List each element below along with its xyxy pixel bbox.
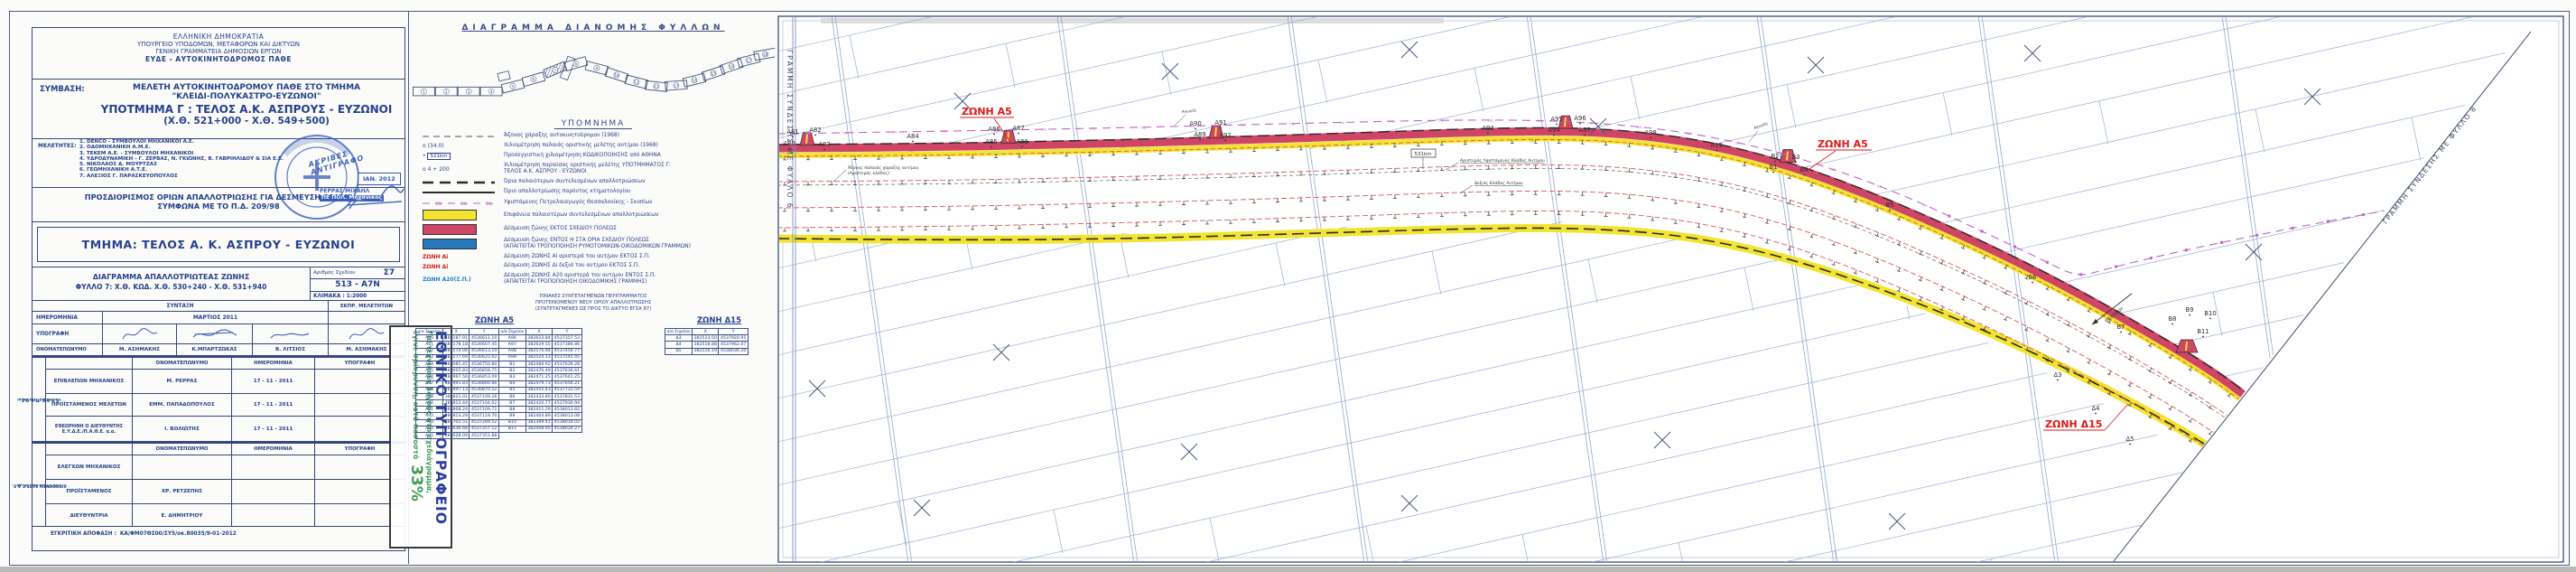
agency-line: ΓΕΝΙΚΗ ΓΡΑΜΜΑΤΕΙΑ ΔΗΜΟΣΙΩΝ ΕΡΓΩΝ (33, 48, 405, 55)
legend-label: Δέσμευση ΖΩΝΗΣ Δi δεξιά του αυτ/μου ΕΚΤΟ… (504, 263, 639, 269)
sheet-index-cell: 8 (564, 57, 588, 71)
table-row: Α84383085.454536750.80Β1382484.924537639… (416, 361, 582, 367)
sheet-index-cell: 7 (544, 61, 567, 78)
diagram-title-section: ΔΙΑΓΡΑΜΜΑ ΑΠΑΛΛΟΤΡΙΩΤΕΑΣ ΖΩΝΗΣ ΦΥΛΛΟ 7: … (33, 267, 405, 301)
coord-y: 4536607.45 (470, 342, 498, 348)
contract-chainage: (Χ.Θ. 521+000 - Χ.Θ. 549+500) (96, 116, 397, 127)
svg-text:OIL: OIL (1389, 119, 1395, 124)
table-row: Α87382991.834536860.86Β4382479.734537656… (416, 380, 582, 387)
drawing-number-box: Αριθμός ΣχεδίουΣ7 513 - Α7Ν ΚΛΙΜΑΚΑ : 1:… (311, 267, 405, 300)
coord-y: 4536870.52 (470, 387, 498, 393)
boundary-point-label: B7 (2117, 324, 2125, 331)
sheet-index-cell: 2 (435, 87, 457, 96)
coord-col-header: Χ (693, 329, 719, 335)
boundary-point-label: B1 (1770, 164, 1778, 171)
point-id: Β2 (498, 368, 525, 374)
coord-x: 383005.83 (443, 368, 470, 374)
point-id: Β3 (498, 374, 525, 380)
approvals-directorate: ΔΙΕΥΘΥΝΣΗ Δ13Γ Γ.Δ.Ε.ΥΠΟΥΡΓΕΙΟ ΥΠΟ.ΜΕ.ΔΙ… (33, 442, 405, 527)
table-row: Α83383177.694536625.02Α99382524.13453754… (416, 354, 582, 361)
svg-text:OIL: OIL (1091, 126, 1097, 130)
coord-x: 382411.29 (525, 407, 552, 413)
map-canvas: OILOILOILOILOILOILOILOILOILOILOILOILOILO… (777, 15, 2565, 564)
zone-label-a5-2: ΖΩΝΗ Α5 (1818, 138, 1868, 150)
boundary-point-label: B6 (2029, 274, 2037, 281)
approver-name: Ε. ΔΗΜΗΤΡΙΟΥ (133, 504, 232, 527)
date-value: ΜΑΡΤΙΟΣ 2011 (103, 312, 329, 324)
legend-item: ΖΩΝΗ ΑiΔέσμευση ΖΩΝΗΣ Αi αριστερά του αυ… (412, 254, 775, 260)
table-row: Α94382636.664537357.12Β11382408.95453803… (416, 426, 582, 432)
svg-text:OIL: OIL (1488, 117, 1494, 122)
svg-text:OIL: OIL (1041, 127, 1047, 132)
boundary-point-label: A96 (1574, 115, 1586, 122)
point-id: Α89 (416, 393, 443, 399)
boundary-point-label: B3 (1792, 154, 1800, 161)
svg-text:OIL: OIL (1686, 131, 1692, 136)
legend-item: ΖΩΝΗ ΔiΔέσμευση ΖΩΝΗΣ Δi δεξιά του αυτ/μ… (412, 263, 775, 269)
prep-name: Β. ΛΙΤΣΙΟΣ (253, 344, 329, 355)
coord-x: 382636.66 (443, 426, 470, 432)
signature (253, 324, 329, 343)
point-id: Β7 (498, 400, 525, 407)
legend-label: Δέσμευση ΖΩΝΗΣ Αi αριστερά του αυτ/μου Ε… (504, 254, 650, 260)
legend-symbol-sw-blue (412, 239, 504, 249)
right-branch-note: Δεξιός Κλάδος Αυτ/μου (1474, 180, 1523, 186)
legend-symbol-axis (412, 133, 504, 140)
legend-label: Χιλιομέτρηση παλαιάς οριστικής μελέτης α… (504, 143, 658, 149)
boundary-point-label: Δ3 (2054, 371, 2062, 379)
contract-subsection: ΥΠΟΤΜΗΜΑ Γ : ΤΕΛΟΣ Α.Κ. ΑΣΠΡΟΥΣ - ΕΥΖΩΝΟ… (96, 101, 397, 116)
table-row: Α85383005.834536858.75Β2382476.494537636… (416, 368, 582, 374)
coord-x: 382991.83 (443, 380, 470, 387)
sheet-index-cell: 16 (720, 59, 743, 73)
svg-text:OIL: OIL (1877, 184, 1883, 189)
svg-text:OIL: OIL (435, 202, 442, 207)
col-name: ΟΝΟΜΑΤΕΠΩΝΥΜΟ (133, 444, 232, 455)
coord-y: 4537269.52 (470, 419, 498, 426)
drawing-number-top: Σ7 (374, 268, 405, 277)
coord-col-header: Υ (719, 329, 748, 335)
svg-text:OIL: OIL (1140, 125, 1147, 129)
sheet-index-cell: 3 (458, 87, 479, 96)
legend-symbol-oil: OILOILOIL (412, 199, 504, 207)
coord-y: 4537357.12 (470, 426, 498, 432)
svg-text:OIL: OIL (942, 129, 948, 134)
date-label: ΗΜΕΡΟΜΗΝΙΑ (33, 312, 103, 324)
legend-label: Χιλιομέτρηση παρούσας οριστικής μελέτης … (504, 163, 671, 176)
legend-label: Υφιστάμενος Πετρελαιαγωγός Θεσσαλονίκης … (504, 200, 653, 206)
coord-y: 4538034.27 (553, 426, 581, 432)
coord-col-header: Υ (553, 329, 581, 335)
boundary-point-label: A93 (1482, 125, 1493, 132)
legend-item: Άξονας χάραξης αυτοκινητοδρομου (1968) (412, 133, 775, 140)
point-id: Α99 (498, 354, 525, 361)
point-id: Α83 (416, 354, 443, 361)
coord-y (553, 433, 581, 439)
contract-label: ΣΥΜΒΑΣΗ: (40, 85, 85, 94)
point-id: Β5 (498, 387, 525, 393)
point-id: Β4 (498, 380, 525, 387)
sheet-index-title: ΔΙΑΓΡΑΜΜΑ ΔΙΑΝΟΜΗΣ ΦΥΛΛΩΝ (412, 23, 775, 33)
approver-name: Μ. ΡΕΡΡΑΣ (133, 370, 232, 393)
coord-x: 382524.13 (525, 354, 552, 361)
role: ΕΘΕΩΡΗΘΗ Ο ΔΙΕΥΘΥΝΤΗΣ Ε.Υ.Δ.Ε./Π.Α.Θ.Ε. … (46, 417, 133, 442)
coord-x: 383177.69 (443, 354, 470, 361)
coord-x: 382399.41 (525, 419, 552, 426)
table-row: Δ3382523.504537920.91 (665, 335, 749, 342)
legend-label: Δέσμευση ζώνης ΕΚΤΟΣ ΣΧΕΔΙΟΥ ΠΟΛΕΩΣ (504, 226, 617, 232)
prep-name: Μ. ΑΣΗΜΑΚΗΣ (103, 344, 177, 355)
legend-item: Δέσμευση ζώνης ΕΚΤΟΣ ΣΧΕΔΙΟΥ ΠΟΛΕΩΣ (412, 224, 775, 235)
boundary-point-label: A80 (783, 140, 795, 147)
sheet-index-cell: 18 (754, 48, 775, 61)
point-id: Α84 (416, 361, 443, 367)
coord-x: 382408.95 (525, 426, 552, 432)
table-row: Δ5382516.194538036.20 (665, 348, 749, 354)
scan-edge (0, 567, 2576, 572)
col-date: ΗΜΕΡΟΜΗΝΙΑ (232, 358, 315, 369)
sheet-number: 12 (654, 84, 659, 90)
coord-y: 4538036.20 (719, 348, 748, 354)
point-id: Β8 (498, 407, 525, 413)
legend-item: OILOILOILΥφιστάμενος Πετρελαιαγωγός Θεσσ… (412, 199, 775, 207)
approval-date: 17 - 11 - 2011 (232, 394, 315, 416)
legend-label: Άξονας χάραξης αυτοκινητοδρομου (1968) (504, 133, 619, 139)
coord-y: 4537636.61 (553, 368, 581, 374)
table-row: Α92382813.294537119.70Β9382404.894538013… (416, 413, 582, 419)
coord-y: 4537109.26 (470, 393, 498, 399)
agency-line: ΕΛΛΗΝΙΚΗ ΔΗΜΟΚΡΑΤΙΑ (33, 28, 405, 41)
diagram-title: ΔΙΑΓΡΑΜΜΑ ΑΠΑΛΛΟΤΡΙΩΤΕΑΣ ΖΩΝΗΣ (33, 267, 310, 281)
agency-line: ΥΠΟΥΡΓΕΙΟ ΥΠΟΔΟΜΩΝ, ΜΕΤΑΦΟΡΩΝ ΚΑΙ ΔΙΚΤΥΩ… (33, 41, 405, 48)
boundary-point-label: A87 (1012, 125, 1024, 132)
point-id: Β6 (498, 393, 525, 399)
coord-x: 383085.45 (443, 361, 470, 367)
coord-x: 382476.49 (525, 368, 552, 374)
sheet-index-cell: 9 (585, 61, 609, 75)
boundary-point-label: A99 (1710, 142, 1722, 149)
legend-label: Όριο απαλλοτρίωσης παρόντος κτηματολογίο… (504, 189, 631, 195)
point-id: Δ3 (665, 335, 693, 342)
point-id: Δ4 (665, 342, 693, 348)
coord-y: 4537119.70 (470, 413, 498, 419)
coord-x: 382404.89 (525, 413, 552, 419)
approval-date: 17 - 11 - 2011 (232, 417, 315, 442)
svg-text:OIL: OIL (1734, 140, 1741, 145)
svg-text:OIL: OIL (842, 130, 849, 135)
coord-col-header: Χ (525, 329, 552, 335)
sheet-index-cell: 4 (480, 87, 502, 96)
coord-col-header: Χ (443, 329, 470, 335)
coord-x: 382471.25 (525, 374, 552, 380)
legend-label: Δέσμευση ζώνης ΕΝΤΟΣ Η ΣΤΑ ΟΡΙΑ ΣΧΕΔΙΟΥ … (504, 238, 691, 251)
coord-x: 382518.88 (693, 342, 719, 348)
boundary-point-label: A82 (809, 127, 821, 134)
sheet-number: 4 (490, 89, 493, 95)
coord-x: 382629.55 (525, 342, 552, 348)
prep-header-right: ΕΚΠΡ. ΜΕΛΕΤΗΤΩΝ (329, 301, 405, 311)
engineer-stamp: ΡΕΡΡΑΣ ΜΙΧΑΗΛ ΠΕ ΠΟΛ. Μηχανικός (320, 189, 384, 202)
table-row: Α81383178.184536607.45Α97382629.55453738… (416, 342, 582, 348)
role: ΕΛΕΓΧΩΝ ΜΗΧΑΝΙΚΟΣ (46, 455, 133, 479)
legend-symbol-sw-red (412, 224, 504, 235)
point-id (498, 433, 525, 439)
coord-y: 4536860.86 (470, 380, 498, 387)
boundary-point-label: A85 (985, 138, 997, 145)
coord-y: 4537386.86 (553, 342, 581, 348)
approval-decision-value: ΚΑ/ΦΜ07ΘΣ00/ΣΥ5/οκ.80035/9-01-2012 (120, 531, 237, 537)
svg-text:OIL: OIL (1339, 120, 1345, 125)
coord-y: 4537920.91 (719, 335, 748, 342)
boundary-point-label: A84 (907, 133, 918, 140)
boundary-point-label: Δ4 (2092, 405, 2100, 412)
coord-x: 382821.01 (443, 393, 470, 399)
diagram-sheet-range: ΦΥΛΛΟ 7: Χ.Θ. ΚΩΔ. Χ.Θ. 530+240 - Χ.Θ. 5… (33, 281, 310, 291)
boundary-point-label: A98 (1644, 129, 1656, 136)
legend-item: ο (34.0)Χιλιομέτρηση παλαιάς οριστικής μ… (412, 143, 775, 149)
sheet-number: 2 (445, 89, 448, 95)
point-id: Α81 (416, 342, 443, 348)
legend-item: Όρια παλαιότερων συντελεσμένων απαλλοτρι… (412, 179, 775, 186)
point-id: Α90 (416, 400, 443, 407)
coord-col-header: Υ (470, 329, 498, 335)
svg-text:OIL: OIL (1538, 118, 1544, 123)
sheet-index-cell: 6 (522, 72, 545, 87)
boundary-point-label: A90 (1189, 120, 1201, 127)
boundary-point-label: A81 (786, 128, 798, 136)
coord-y: 4537656.21 (553, 380, 581, 387)
contract-title: "ΚΛΕΙΔΙ-ΠΟΛΥΚΑΣΤΡΟ-ΕΥΖΩΝΟΙ" (96, 92, 397, 101)
coord-col-header: α/α Σημείου (665, 329, 693, 335)
boundary-point-label: B9 (2186, 306, 2194, 314)
legend-symbol-zone-a: ΖΩΝΗ Αi (412, 254, 504, 260)
boundary-point-label: A92 (1219, 132, 1231, 139)
prep-header-row: ΣΥΝΤΑΞΗ ΕΚΠΡ. ΜΕΛΕΤΗΤΩΝ (33, 301, 405, 312)
coord-y: 4537733.59 (553, 387, 581, 393)
legend-item: Δέσμευση ζώνης ΕΝΤΟΣ Η ΣΤΑ ΟΡΙΑ ΣΧΕΔΙΟΥ … (412, 238, 775, 251)
legend-symbol-zone-d: ΖΩΝΗ Δi (412, 264, 504, 270)
km-marker-531: 531km (1414, 152, 1431, 157)
coord-x: 382702.51 (443, 419, 470, 426)
coord-x: 383187.91 (443, 335, 470, 342)
coord-x (525, 433, 552, 439)
table-row: Α88382997.134536870.52Β5382455.434537733… (416, 387, 582, 393)
coord-y: 4537962.07 (719, 342, 748, 348)
section-title: ΤΜΗΜΑ: ΤΕΛΟΣ Α. Κ. ΑΣΠΡΟΥ - ΕΥΖΩΝΟΙ (37, 227, 400, 262)
boundary-point-label: A89 (1194, 131, 1205, 138)
coord-x: 382523.50 (693, 335, 719, 342)
boundary-point-label: A95 (1550, 116, 1562, 123)
coord-tables-title: ΠΙΝΑΚΕΣ ΣΥΝΤΕΤΑΓΜΕΝΩΝ ΠΕΡΙΓΡΑΜΜΑΤΟΣ (412, 294, 775, 300)
coord-col-header: α/α Σημείου (416, 329, 443, 335)
legend-label: Επιφάνεια παλαιοτέρων συντελεσμένων απαλ… (504, 212, 658, 219)
zone-label-a5: ΖΩΝΗ Α5 (962, 106, 1012, 117)
role: ΔΙΕΥΘΥΝΤΡΙΑ (46, 504, 133, 527)
approval-decision-row: ΕΓΚΡΙΤΙΚΗ ΑΠΟΦΑΣΗ : ΚΑ/ΦΜ07ΘΣ00/ΣΥ5/οκ.8… (33, 527, 405, 541)
sheet-number: 3 (468, 89, 470, 95)
table-row: Α86382997.564536853.09Β3382471.254537641… (416, 374, 582, 380)
approval-date: 17 - 11 - 2011 (232, 370, 315, 393)
legend-symbol-dot-code: • 521km (412, 153, 504, 160)
sheet-number: 1 (423, 89, 425, 95)
svg-text:OIL: OIL (1240, 123, 1246, 127)
boundary-point-label: B2 (1772, 153, 1780, 160)
table-row: Α82383174.044536613.10Α98382570.94453745… (416, 348, 582, 354)
coord-y: 4537545.45 (553, 354, 581, 361)
boundary-point-label: B4 (1800, 166, 1809, 173)
svg-text:OIL: OIL (1438, 118, 1445, 123)
coord-x: 382420.77 (525, 400, 552, 407)
point-id: Α96 (498, 335, 525, 342)
coord-y: 4537456.77 (553, 348, 581, 354)
approval-decision-label: ΕΓΚΡΙΤΙΚΗ ΑΠΟΦΑΣΗ : (51, 531, 116, 537)
coord-x: 382433.80 (525, 393, 552, 399)
contract-title: ΜΕΛΕΤΗ ΑΥΤΟΚΙΝΗΤΟΔΡΟΜΟΥ ΠΑΘΕ ΣΤΟ ΤΜΗΜΑ (96, 80, 397, 92)
coord-y: 4536611.10 (470, 335, 498, 342)
legend-label: Προσεγγιστική χιλιομέτρηση ΚΩΔΙΚΟΠΟΙΗΣΗΣ… (504, 153, 661, 159)
coord-y: 4537930.94 (553, 400, 581, 407)
zone-label-d15: ΖΩΝΗ Δ15 (2045, 418, 2102, 430)
old-axis-note2: (Αριστερός κλάδος) (848, 170, 889, 176)
coord-x: 382808.24 (443, 407, 470, 413)
approvals-ministry: ΥΠΟΥΡΓΕΙΟ ΥΠΟ.ΜΕ.ΔΙ (17, 398, 60, 401)
name-label: ΟΝΟΜΑΤΕΠΩΝΥΜΟ (33, 344, 103, 355)
legend-symbol-zone-a20: ΖΩΝΗ Α20(Σ.Π.) (412, 277, 504, 283)
table-row: Α91382808.244537109.71Β8382411.294538013… (416, 407, 582, 413)
legend-symbol-sw-yellow (412, 210, 504, 220)
agency-line: ΕΥΔΕ - ΑΥΤΟΚΙΝΗΤΟΔΡΟΜΟΣ ΠΑΘΕ (33, 55, 405, 63)
coord-x: 382628.09 (443, 433, 470, 439)
sheet-number: 13 (674, 83, 679, 89)
legend-item: Όριο απαλλοτρίωσης παρόντος κτηματολογίο… (412, 189, 775, 196)
coord-x: 382516.19 (693, 348, 719, 354)
point-id: Α87 (416, 380, 443, 387)
sheet-index-cell: 11 (625, 75, 648, 89)
boundary-point-label: Δ5 (2126, 436, 2134, 443)
coord-x: 382484.92 (525, 361, 552, 367)
svg-text:OIL: OIL (892, 129, 898, 134)
signature (177, 324, 253, 343)
sheet-index-cell: 12 (645, 80, 667, 91)
prep-name: Κ.ΜΠΑΡΤΖΩΚΑΣ (177, 344, 253, 355)
coord-tables-subtitle: ΠΡΟΤΕΙΝΟΜΕΝΟΥ ΝΕΟΥ ΟΡΙΟΥ ΑΠΑΛΛΟΤΡΙΩΣΗΣ (412, 300, 775, 306)
prep-sign-row: ΥΠΟΓΡΑΦΗ (33, 324, 405, 344)
svg-text:OIL: OIL (460, 202, 468, 207)
coord-y: 4537109.71 (470, 407, 498, 413)
boundary-point-label: A94 (1548, 127, 1559, 134)
point-id: Α97 (498, 342, 525, 348)
coord-y: 4537357.53 (553, 335, 581, 342)
coord-tables-datum: (ΣΥΝΤΕΤΑΓΜΕΝΕΣ ΩΣ ΠΡΟΣ ΤΟ ΔΙΚΤΥΟ ΕΓΣΑ 87… (412, 306, 775, 313)
point-id: Β1 (498, 361, 525, 367)
approver-name: ΧΡ. ΡΕΤΖΕΠΗΣ (133, 480, 232, 503)
sheet-index-cell: 1 (413, 87, 434, 96)
coord-y: 4537639.28 (553, 361, 581, 367)
engineer-title: ΠΕ ΠΟΛ. Μηχανικός (320, 195, 384, 202)
boundary-point-label: A88 (1016, 138, 1028, 145)
point-id: Β9 (498, 413, 525, 419)
col-date: ΗΜΕΡΟΜΗΝΙΑ (232, 444, 315, 455)
point-id: Α98 (498, 348, 525, 354)
coord-x: 382997.56 (443, 374, 470, 380)
point-id: Β10 (498, 419, 525, 426)
svg-text:OIL: OIL (486, 202, 493, 207)
legend-panel: ΔΙΑΓΡΑΜΜΑ ΔΙΑΝΟΜΗΣ ΦΥΛΛΩΝ 12345678910111… (412, 13, 775, 566)
col-name: ΟΝΟΜΑΤΕΠΩΝΥΜΟ (133, 358, 232, 369)
coord-y: 4538013.82 (553, 407, 581, 413)
legend-label: Δέσμευση ΖΩΝΗΣ Α20 αριστερά του αυτ/μου … (504, 273, 656, 286)
prep-name-row: ΟΝΟΜΑΤΕΠΩΝΥΜΟ Μ. ΑΣΗΜΑΚΗΣ Κ.ΜΠΑΡΤΖΩΚΑΣ Β… (33, 344, 405, 356)
sheet-index-cell: 5 (501, 80, 525, 93)
coord-x: 382812.44 (443, 400, 470, 407)
approver-name: ΕΜΜ. ΠΑΠΑΔΟΠΟΥΛΟΣ (133, 394, 232, 416)
map-frame (778, 16, 2563, 562)
drawing-number: 513 - Α7Ν (311, 279, 405, 292)
boundary-point-label: A97 (1578, 127, 1590, 134)
svg-text:OIL: OIL (1922, 203, 1929, 208)
approver-name: Ι. ΒΟΛΙΩΤΗΣ (133, 417, 232, 442)
table-row: Α95382628.094537351.88 (416, 433, 582, 439)
point-id: Δ5 (665, 348, 693, 354)
table-row: Α90382812.444537104.02Β7382420.774537930… (416, 400, 582, 407)
agency-header: ΕΛΛΗΝΙΚΗ ΔΗΜΟΚΡΑΤΙΑ ΥΠΟΥΡΓΕΙΟ ΥΠΟΔΟΜΩΝ, … (33, 28, 405, 80)
zoneA-table-title: ΖΩΝΗ Α5 (475, 316, 514, 325)
point-id: Α95 (416, 433, 443, 439)
sheet-index-cell: 10 (605, 68, 628, 82)
legend-item: ο 4 + 200Χιλιομέτρηση παρούσας οριστικής… (412, 163, 775, 176)
point-id: Α86 (416, 374, 443, 380)
coord-y: 4538018.02 (553, 419, 581, 426)
boundary-point-label: A86 (988, 126, 1000, 133)
point-id: Α85 (416, 368, 443, 374)
sign-label: ΥΠΟΓΡΑΦΗ (33, 324, 103, 343)
approvals-ministry: ΥΠΟΥΡΓΕΙΟ ΥΠΟ.ΜΕ.ΔΙ (17, 483, 60, 486)
coord-col-header: α/α Σημείου (498, 329, 525, 335)
signature (103, 324, 177, 343)
boundary-point-label: A91 (1214, 119, 1226, 127)
coord-x: 382813.29 (443, 413, 470, 419)
old-axis-note: Άξονας παλαιάς χάραξης αυτ/μου (848, 164, 919, 171)
coord-x: 382570.94 (525, 348, 552, 354)
coord-y: 4536613.10 (470, 348, 498, 354)
zoneD-coordinates-table: α/α ΣημείουΧΥΔ3382523.504537920.91Δ43825… (665, 328, 749, 355)
prep-date-row: ΗΜΕΡΟΜΗΝΙΑ ΜΑΡΤΙΟΣ 2011 (33, 312, 405, 324)
sheet-index-diagram: 123456789101112131415161718 (412, 33, 775, 116)
point-id: Α92 (416, 413, 443, 419)
coord-x: 382479.73 (525, 380, 552, 387)
legend-item: • 521kmΠροσεγγιστική χιλιομέτρηση ΚΩΔΙΚΟ… (412, 153, 775, 160)
point-id: Α91 (416, 407, 443, 413)
coord-y: 4537641.25 (553, 374, 581, 380)
zoneD-table-title: ΖΩΝΗ Δ15 (697, 316, 741, 325)
point-id: Α93 (416, 419, 443, 426)
table-row: Α93382702.514537269.52Β10382399.41453801… (416, 419, 582, 426)
coord-y: 4537831.53 (553, 393, 581, 399)
section-title-box: ΤΜΗΜΑ: ΤΕΛΟΣ Α. Κ. ΑΣΠΡΟΥ - ΕΥΖΩΝΟΙ (33, 222, 405, 267)
boundary-point-label: B8 (2169, 315, 2177, 323)
coord-y: 4536625.02 (470, 354, 498, 361)
svg-text:OIL: OIL (1289, 121, 1296, 126)
svg-text:OIL: OIL (1830, 167, 1837, 172)
svg-text:OIL: OIL (1782, 153, 1789, 157)
coord-y: 4536853.09 (470, 374, 498, 380)
approvals-evde: Ε.Υ.Δ.Ε./Π.Α.Θ.Ε.ΥΠΟΥΡΓΕΙΟ ΥΠΟ.ΜΕ.ΔΙ ΟΝΟ… (33, 356, 405, 442)
prep-header: ΣΥΝΤΑΞΗ (33, 301, 329, 311)
point-id: Α94 (416, 426, 443, 432)
coord-y: 4537351.88 (470, 433, 498, 439)
svg-text:OIL: OIL (1636, 125, 1642, 129)
coord-x: 383174.04 (443, 348, 470, 354)
